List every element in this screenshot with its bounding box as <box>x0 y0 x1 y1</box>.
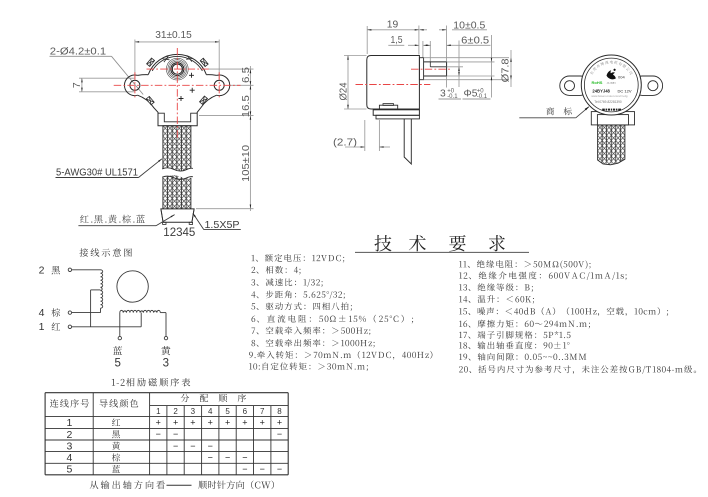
svg-text:6: 6 <box>243 407 248 416</box>
svg-text:Ø7.8: Ø7.8 <box>501 58 512 82</box>
svg-text:1: 1 <box>39 321 45 333</box>
svg-text:+: + <box>190 418 195 428</box>
svg-text:+: + <box>208 418 213 428</box>
svg-text:2-Ø4.2±0.1: 2-Ø4.2±0.1 <box>50 46 107 57</box>
svg-text:5-AWG30# UL1571: 5-AWG30# UL1571 <box>56 168 138 179</box>
svg-text:6.5: 6.5 <box>241 67 252 83</box>
svg-text:+: + <box>260 418 265 428</box>
svg-text:−: − <box>190 441 195 451</box>
svg-text:DC 12V: DC 12V <box>618 88 632 93</box>
svg-text:10±0.5: 10±0.5 <box>453 20 485 31</box>
svg-text:+: + <box>225 418 230 428</box>
svg-text:−: − <box>208 453 213 463</box>
svg-text:31±0.15: 31±0.15 <box>155 30 192 41</box>
svg-text:4: 4 <box>208 407 213 416</box>
svg-text:−: − <box>242 464 247 474</box>
svg-text:5: 5 <box>225 407 230 416</box>
svg-text:8: 8 <box>277 407 282 416</box>
svg-text:4: 4 <box>66 452 72 464</box>
svg-text:004: 004 <box>618 74 625 79</box>
svg-text:7: 7 <box>260 407 265 416</box>
svg-text:+: + <box>156 418 161 428</box>
svg-text:−: − <box>225 453 230 463</box>
svg-text:3: 3 <box>66 440 72 452</box>
svg-text:5: 5 <box>114 358 120 370</box>
svg-text:−: − <box>242 453 247 463</box>
svg-text:105±10: 105±10 <box>241 145 252 182</box>
svg-text:24BYJ48: 24BYJ48 <box>592 88 610 93</box>
svg-text:+: + <box>242 418 247 428</box>
svg-text:−: − <box>173 429 178 439</box>
svg-text:JX-35BY: JX-35BY <box>607 82 617 85</box>
svg-text:Tel:0769-82281390: Tel:0769-82281390 <box>594 100 622 104</box>
svg-text:16.5: 16.5 <box>241 95 252 117</box>
svg-text:Ø24: Ø24 <box>338 82 349 100</box>
svg-text:+: + <box>277 418 282 428</box>
svg-text:−: − <box>277 464 282 474</box>
svg-text:1: 1 <box>156 407 161 416</box>
svg-text:3: 3 <box>440 88 446 99</box>
svg-text:7: 7 <box>72 82 83 88</box>
svg-text:2: 2 <box>66 429 72 441</box>
svg-text:1: 1 <box>66 417 72 429</box>
svg-text:−: − <box>260 464 265 474</box>
svg-text:2: 2 <box>39 264 45 276</box>
svg-text:6±0.5: 6±0.5 <box>461 35 489 46</box>
svg-text:Φ5: Φ5 <box>464 88 478 99</box>
svg-text:RoHS: RoHS <box>592 80 603 85</box>
svg-text:1,5: 1,5 <box>391 35 403 46</box>
svg-text:−: − <box>173 441 178 451</box>
svg-text:+: + <box>173 418 178 428</box>
svg-text:3: 3 <box>163 358 169 370</box>
svg-text:4: 4 <box>39 307 45 319</box>
svg-text:−: − <box>208 441 213 451</box>
svg-text:19: 19 <box>387 19 399 30</box>
svg-text:−: − <box>156 429 161 439</box>
svg-text:−: − <box>277 429 282 439</box>
svg-text:3: 3 <box>191 407 196 416</box>
svg-text:5: 5 <box>66 464 72 476</box>
svg-text:12345: 12345 <box>163 227 195 239</box>
svg-text:2: 2 <box>173 407 178 416</box>
svg-text:www.bosen-motor.com/cn-dg: www.bosen-motor.com/cn-dg <box>591 94 628 98</box>
